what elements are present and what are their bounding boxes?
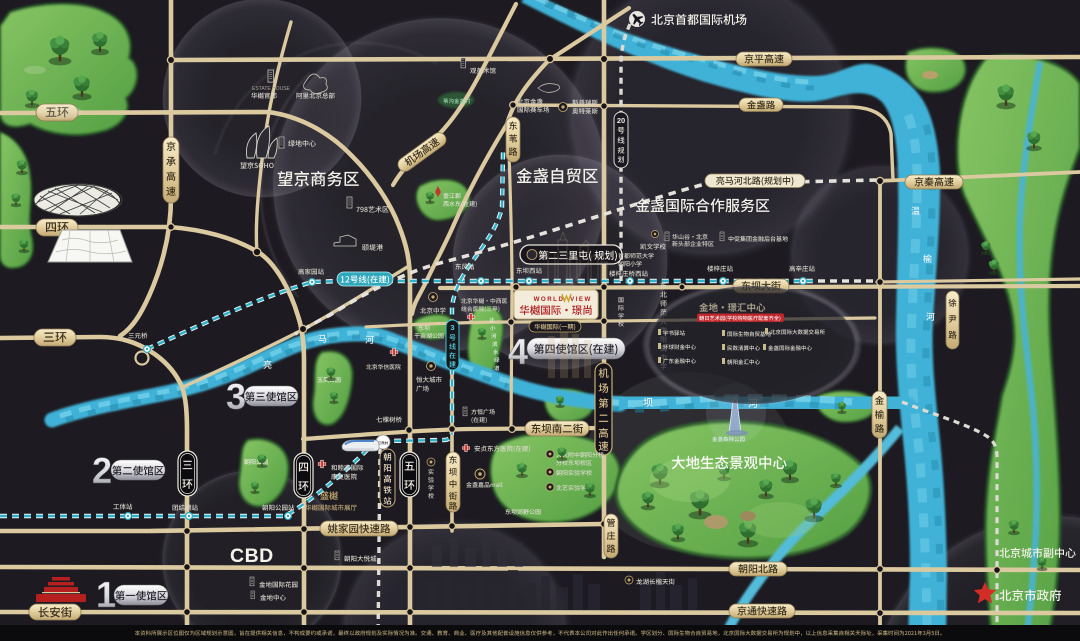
svg-text:3: 3	[450, 323, 454, 332]
svg-text:4: 4	[508, 331, 528, 372]
svg-text:CBD: CBD	[230, 545, 274, 567]
svg-text:ESTATE HOUSE: ESTATE HOUSE	[252, 86, 291, 92]
svg-text:1: 1	[96, 574, 116, 615]
svg-text:20: 20	[617, 116, 625, 125]
svg-text:CRH: CRH	[378, 441, 388, 446]
svg-text:WORLD: WORLD	[534, 296, 565, 303]
svg-text:2: 2	[92, 450, 112, 491]
svg-text:VIEW: VIEW	[570, 296, 592, 303]
svg-text:3: 3	[226, 376, 246, 417]
